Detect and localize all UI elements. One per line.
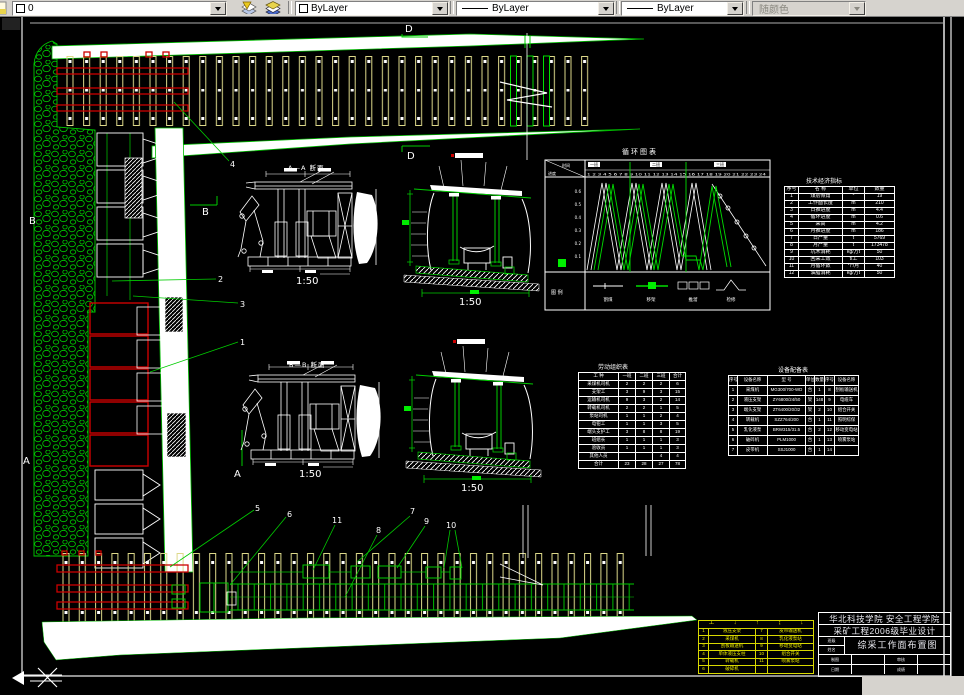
svg-text:2: 2 — [218, 275, 223, 284]
svg-text:0.6: 0.6 — [575, 189, 582, 194]
bottom-roadway — [42, 505, 697, 660]
layer-dropdown-arrow[interactable] — [210, 2, 226, 15]
object-properties-toolbar: 0 ByLayer ByLayer — [0, 0, 964, 17]
sheet-icon[interactable] — [0, 1, 10, 15]
svg-text:4: 4 — [230, 160, 235, 169]
section-mark-b-left: B — [29, 216, 36, 227]
chart-corner-label: 进度 — [548, 170, 556, 176]
drawing-canvas[interactable]: 1:50 — [0, 0, 964, 695]
chart-hour-ticks: 1 2 3 4 5 6 7 8 9 10 11 12 13 14 15 16 1… — [587, 173, 766, 177]
canvas-corner — [2, 18, 20, 30]
chart-shift-label: 二班 — [650, 162, 662, 167]
cad-application-window: 1:50 — [0, 0, 964, 695]
svg-text:1: 1 — [240, 338, 245, 347]
current-linetype-name: ByLayer — [492, 3, 529, 14]
svg-text:6: 6 — [287, 510, 292, 519]
svg-text:0.1: 0.1 — [575, 254, 582, 259]
current-lineweight-name: ByLayer — [657, 3, 694, 14]
chart-shift-label: 三班 — [714, 162, 726, 167]
callout-numbers: 12 34 56 78 910 11 — [218, 160, 456, 535]
section-mark-d-bottom: D — [407, 151, 415, 162]
toolbar-separator — [450, 1, 454, 14]
svg-text:0.2: 0.2 — [575, 241, 582, 246]
svg-text:3: 3 — [240, 300, 245, 309]
section-mark-a-left: A — [23, 456, 30, 467]
chart-legend: 割煤 移架 推溜 检修 — [593, 280, 746, 303]
toolbar-separator — [746, 1, 750, 14]
chart-corner-label: 时间 — [562, 162, 570, 168]
svg-text:割煤: 割煤 — [604, 296, 613, 303]
make-layer-current-icon — [240, 1, 258, 14]
equipment-table-title: 设备配备表 — [778, 366, 808, 374]
svg-text:9: 9 — [424, 517, 429, 526]
svg-text:10: 10 — [446, 521, 456, 530]
linetype-control-dropdown[interactable]: ByLayer — [456, 1, 615, 16]
toolbar-separator — [616, 1, 620, 14]
plot-style-dropdown-arrow — [849, 2, 865, 15]
section-mark-d-top: D — [405, 24, 413, 35]
cycle-chart-title: 循环图表 — [622, 147, 658, 156]
section-mark-b-plan: B — [202, 207, 209, 218]
layer-control-dropdown[interactable]: 0 — [12, 1, 227, 16]
top-roadway — [52, 33, 644, 160]
tech-table-title: 技术经济指标 — [806, 177, 842, 185]
svg-text:0.3: 0.3 — [575, 228, 582, 233]
lineweight-sample — [627, 8, 653, 9]
lineweight-dropdown-arrow[interactable] — [727, 2, 743, 15]
linetype-sample — [462, 8, 488, 9]
svg-text:检修: 检修 — [727, 296, 736, 303]
cycle-chart: 循环图表 时间 进度 1 2 3 4 5 6 7 8 9 10 11 12 13… — [545, 147, 770, 310]
svg-text:0.4: 0.4 — [575, 215, 582, 220]
chart-shift-label: 一班 — [588, 162, 600, 167]
current-color-swatch — [299, 4, 308, 13]
svg-text:推溜: 推溜 — [689, 296, 698, 303]
svg-text:5: 5 — [255, 504, 260, 513]
toolbar-separator — [288, 1, 292, 14]
svg-text:11: 11 — [332, 516, 342, 525]
svg-text:8: 8 — [376, 526, 381, 535]
labor-table-title: 劳动组织表 — [598, 363, 628, 371]
roadway-floor-band — [42, 616, 697, 660]
ucs-icon — [12, 668, 62, 687]
layers-icon — [264, 1, 282, 14]
color-dropdown-arrow[interactable] — [432, 2, 448, 15]
current-layer-name: 0 — [28, 3, 34, 14]
working-face — [90, 128, 193, 572]
linetype-dropdown-arrow[interactable] — [598, 2, 614, 15]
make-object-layer-current-button[interactable] — [237, 0, 260, 15]
svg-text:7: 7 — [410, 507, 415, 516]
current-plot-style: 随颜色 — [759, 1, 789, 16]
shield-supports-red — [90, 303, 148, 466]
window-corner-panel — [862, 676, 964, 695]
svg-text:移架: 移架 — [647, 296, 656, 303]
chart-legend-row-label: 图 例 — [551, 289, 563, 296]
current-color-name: ByLayer — [311, 3, 348, 14]
plot-style-control-dropdown: 随颜色 — [752, 1, 866, 16]
color-control-dropdown[interactable]: ByLayer — [295, 1, 449, 16]
layer-color-swatch — [16, 4, 25, 13]
section-mark-a-plan: A — [234, 469, 241, 480]
svg-text:0.5: 0.5 — [575, 202, 582, 207]
lineweight-control-dropdown[interactable]: ByLayer — [621, 1, 744, 16]
layers-dialog-button[interactable] — [261, 0, 284, 15]
